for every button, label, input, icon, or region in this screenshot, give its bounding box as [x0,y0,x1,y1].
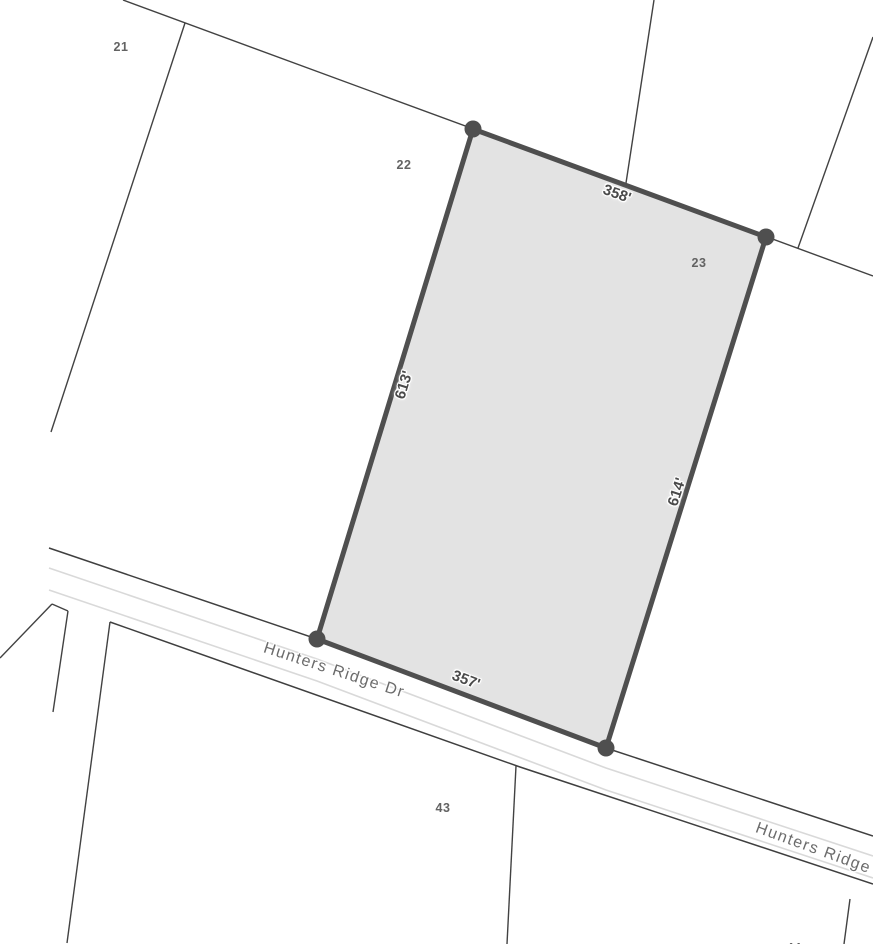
vertex-dot-right [758,229,775,246]
side-street-left-edge [0,604,52,658]
north-lot-boundary [626,0,654,183]
northeast-lot-boundary [798,37,873,248]
lot-number-22: 22 [397,158,412,172]
lot-21-22-boundary [51,23,185,432]
lot-number-21: 21 [114,40,129,54]
vertex-dot-bottom-right [598,740,615,757]
lot-number-23: 23 [692,256,707,270]
selected-parcel-lot-23[interactable] [317,129,766,748]
parcel-map-canvas[interactable]: 358' 613' 614' 357' 21 22 23 43 44 Hunte… [0,0,873,944]
lot-number-43: 43 [436,801,451,815]
vertex-dot-bottom-left [309,631,326,648]
lot-43-east-boundary [507,766,516,944]
lot-44-east-boundary [844,899,850,944]
side-lot-line-west [53,611,68,712]
vertex-dot-top [465,121,482,138]
road-bottom-edge-west-stub [52,604,68,611]
side-lot-line-east [67,622,110,943]
